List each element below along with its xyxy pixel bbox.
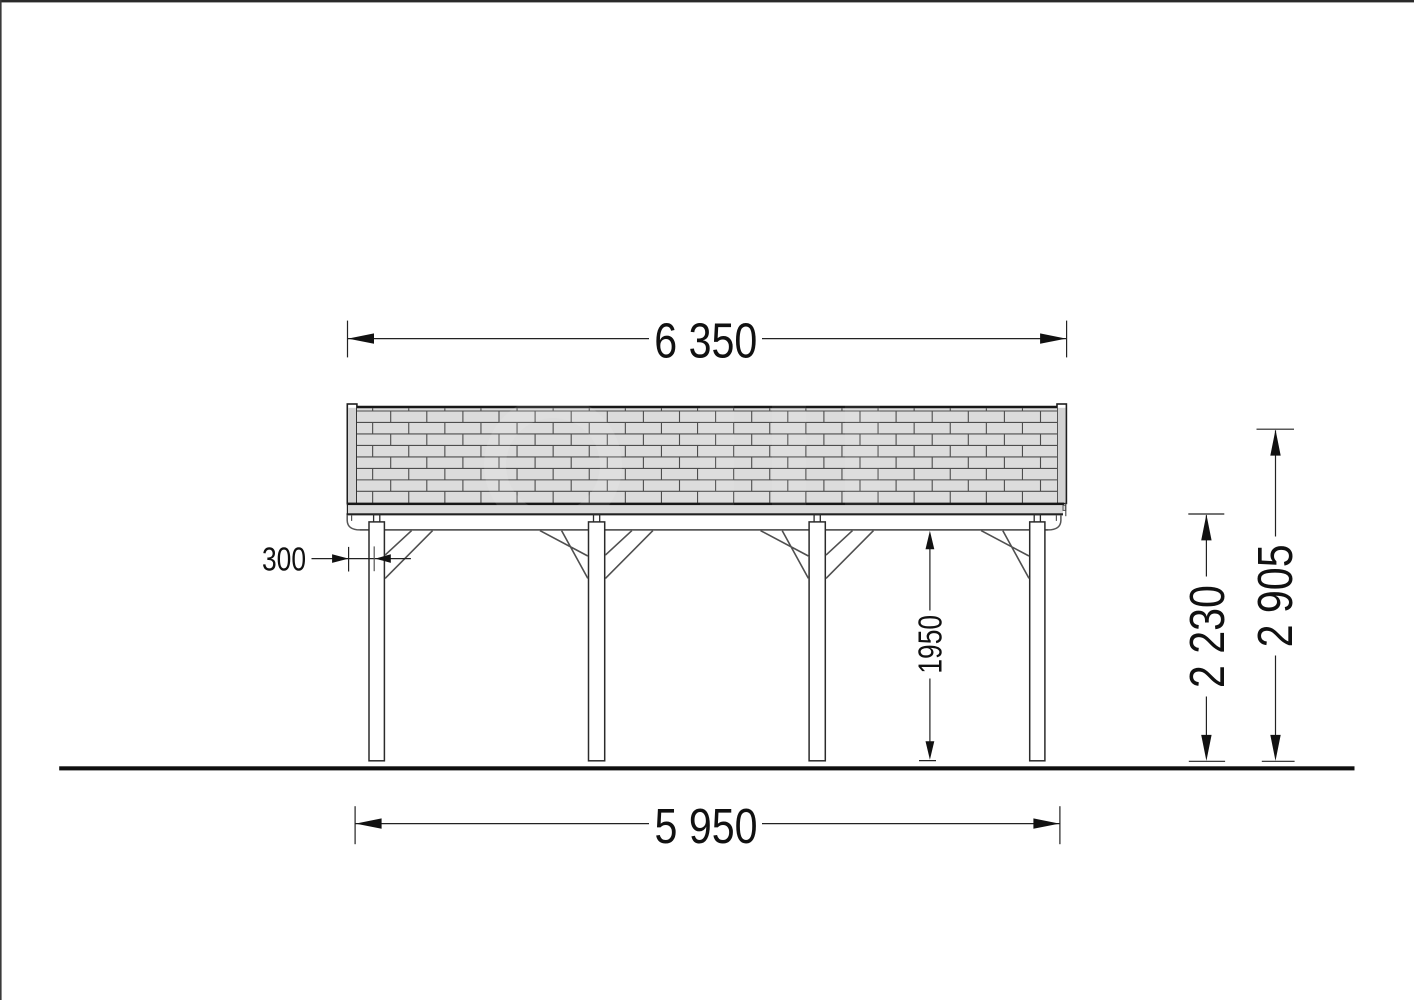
svg-text:2 230: 2 230 xyxy=(1179,585,1234,688)
svg-text:6 350: 6 350 xyxy=(654,313,757,368)
svg-text:1950: 1950 xyxy=(913,615,949,674)
svg-text:300: 300 xyxy=(262,542,306,578)
svg-text:2 905: 2 905 xyxy=(1248,544,1303,647)
svg-text:5 950: 5 950 xyxy=(654,798,757,853)
